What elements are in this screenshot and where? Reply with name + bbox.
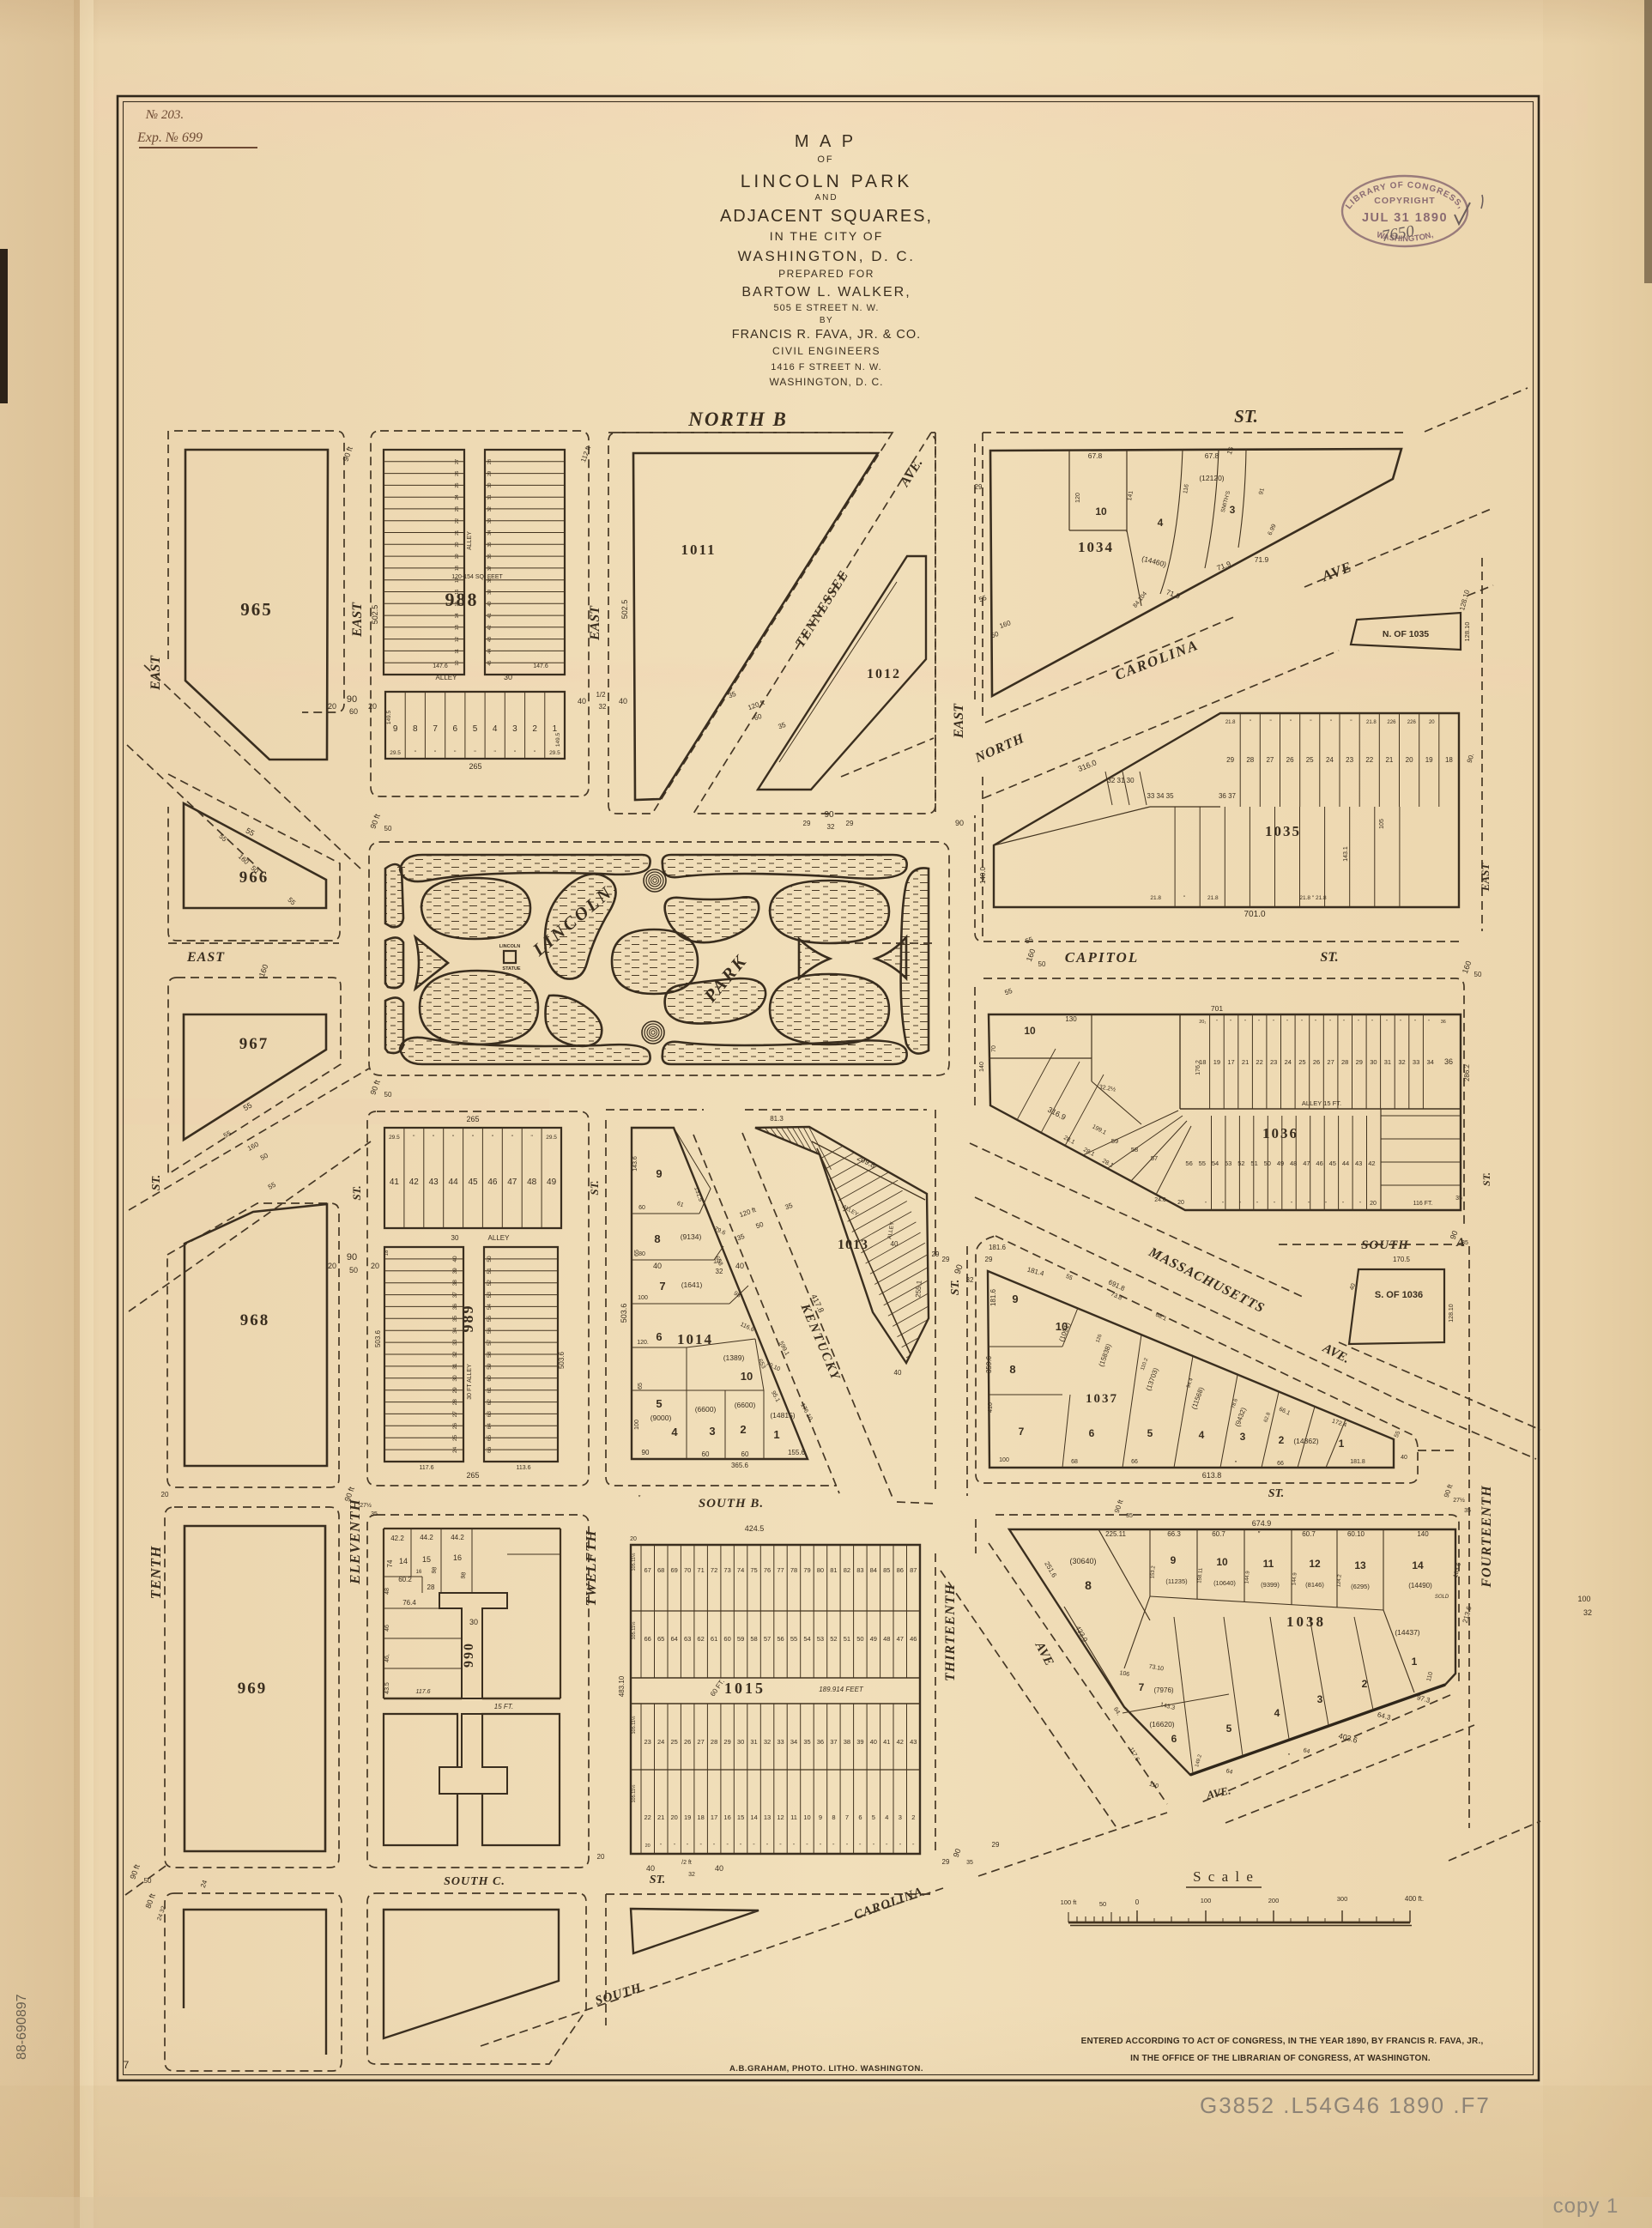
- svg-text:": ": [1270, 720, 1272, 725]
- svg-text:OF: OF: [817, 154, 833, 165]
- svg-text:": ": [1358, 1020, 1359, 1025]
- svg-text:": ": [1414, 1020, 1416, 1025]
- svg-text:": ": [1310, 720, 1311, 725]
- svg-text:№ 203.: № 203.: [145, 108, 184, 122]
- svg-text:": ": [899, 1844, 901, 1849]
- svg-text:1/2: 1/2: [713, 1259, 722, 1265]
- svg-text:1014: 1014: [677, 1331, 713, 1347]
- svg-text:63: 63: [487, 1411, 493, 1418]
- svg-text:21: 21: [1385, 756, 1393, 764]
- svg-text:12: 12: [1309, 1558, 1321, 1570]
- svg-text:1034: 1034: [1078, 539, 1114, 555]
- svg-text:6: 6: [1171, 1733, 1177, 1745]
- svg-text:43: 43: [1355, 1159, 1362, 1167]
- svg-text:37: 37: [487, 566, 493, 571]
- svg-text:53: 53: [487, 1292, 493, 1299]
- svg-text:11: 11: [790, 1813, 797, 1821]
- svg-text:47: 47: [897, 1635, 904, 1643]
- svg-text:(9134): (9134): [681, 1232, 702, 1241]
- svg-text:25: 25: [452, 1435, 458, 1442]
- svg-text:20: 20: [645, 1844, 651, 1849]
- svg-text:": ": [1291, 1202, 1292, 1207]
- svg-text:IN THE OFFICE OF THE LIBRARIAN: IN THE OFFICE OF THE LIBRARIAN OF CONGRE…: [1130, 2054, 1431, 2063]
- svg-text:25: 25: [671, 1738, 678, 1746]
- svg-text:31: 31: [750, 1738, 757, 1746]
- svg-text:": ": [700, 1844, 702, 1849]
- svg-text:ALLEY 15 FT.: ALLEY 15 FT.: [1302, 1099, 1341, 1107]
- svg-text:117.6: 117.6: [420, 1465, 434, 1471]
- svg-text:40: 40: [715, 1864, 723, 1873]
- svg-text:47: 47: [1303, 1159, 1310, 1167]
- svg-text:": ": [1371, 1020, 1373, 1025]
- svg-text:8: 8: [832, 1813, 835, 1821]
- svg-text:ENTERED ACCORDING TO ACT OF CO: ENTERED ACCORDING TO ACT OF CONGRESS, IN…: [1081, 2037, 1484, 2046]
- svg-text:29: 29: [723, 1738, 730, 1746]
- svg-text:42: 42: [1368, 1159, 1375, 1167]
- svg-text:40: 40: [735, 1262, 744, 1270]
- svg-text:ST.: ST.: [949, 1280, 962, 1296]
- svg-text:60: 60: [702, 1450, 710, 1458]
- svg-text:34: 34: [452, 1327, 458, 1334]
- svg-text:": ": [753, 1844, 755, 1849]
- svg-text:44: 44: [487, 649, 493, 654]
- svg-text:23: 23: [455, 506, 460, 512]
- svg-text:41: 41: [883, 1738, 890, 1746]
- svg-text:(12120): (12120): [1199, 474, 1224, 482]
- svg-text:43: 43: [429, 1178, 439, 1187]
- svg-text:120.: 120.: [637, 1340, 649, 1346]
- svg-text:3: 3: [1240, 1431, 1246, 1443]
- svg-text:6: 6: [858, 1813, 862, 1821]
- svg-text:105.11½: 105.11½: [631, 1621, 637, 1639]
- svg-text:56: 56: [777, 1635, 784, 1643]
- svg-text:7: 7: [845, 1813, 849, 1821]
- svg-text:": ": [859, 1844, 861, 1849]
- svg-text:(6600): (6600): [695, 1405, 717, 1414]
- svg-text:/2 ft: /2 ft: [681, 1860, 692, 1866]
- svg-text:23: 23: [1346, 756, 1353, 764]
- svg-text:": ": [1256, 1202, 1258, 1207]
- svg-text:50: 50: [1038, 960, 1046, 968]
- svg-text:120-154 SQ. FEET: 120-154 SQ. FEET: [451, 574, 503, 580]
- svg-text:29: 29: [487, 471, 493, 476]
- svg-text:": ": [1244, 1020, 1246, 1025]
- svg-text:": ": [1258, 1020, 1260, 1025]
- svg-text:54: 54: [487, 1304, 493, 1311]
- svg-text:39: 39: [452, 1268, 458, 1274]
- svg-text:226: 226: [1387, 720, 1396, 725]
- svg-text:": ": [674, 1844, 675, 1849]
- svg-text:62: 62: [487, 1399, 493, 1406]
- svg-text:16: 16: [723, 1813, 730, 1821]
- svg-text:505 E STREET N. W.: 505 E STREET N. W.: [774, 303, 880, 313]
- svg-text:26: 26: [684, 1738, 691, 1746]
- svg-text:33 34 35: 33 34 35: [1147, 792, 1174, 800]
- svg-text:56: 56: [487, 1327, 493, 1334]
- svg-text:13: 13: [1354, 1559, 1366, 1571]
- svg-text:17: 17: [711, 1813, 717, 1821]
- svg-text:265: 265: [466, 1115, 479, 1123]
- svg-text:S c a l e: S c a l e: [1193, 1868, 1255, 1885]
- svg-text:15 FT.: 15 FT.: [494, 1703, 513, 1710]
- svg-text:IN THE CITY OF: IN THE CITY OF: [770, 229, 884, 243]
- svg-text:77: 77: [777, 1566, 784, 1574]
- svg-text:": ": [886, 1844, 887, 1849]
- svg-text:": ": [1216, 1020, 1218, 1025]
- svg-text:59: 59: [737, 1635, 744, 1643]
- svg-text:30: 30: [451, 1234, 459, 1242]
- svg-text:36: 36: [1441, 1020, 1446, 1025]
- svg-text:37: 37: [830, 1738, 837, 1746]
- svg-text:7: 7: [1139, 1681, 1145, 1693]
- svg-text:21.8: 21.8: [1207, 895, 1219, 901]
- svg-text:(14437): (14437): [1395, 1628, 1419, 1637]
- svg-text:6: 6: [1089, 1427, 1095, 1439]
- svg-text:COPYRIGHT: COPYRIGHT: [1374, 196, 1435, 206]
- svg-text:SOLD: SOLD: [1435, 1595, 1449, 1600]
- svg-text:67: 67: [644, 1566, 651, 1574]
- svg-text:105.11½: 105.11½: [631, 1553, 637, 1571]
- svg-text:1: 1: [1412, 1656, 1418, 1668]
- svg-text:1: 1: [553, 724, 558, 734]
- svg-text:27: 27: [452, 1411, 458, 1418]
- svg-text:STATUE: STATUE: [502, 966, 521, 972]
- svg-text:4: 4: [1199, 1429, 1205, 1441]
- svg-text:502.5: 502.5: [620, 600, 629, 620]
- svg-text:S. OF 1036: S. OF 1036: [1375, 1290, 1423, 1300]
- svg-text:26: 26: [1313, 1058, 1320, 1066]
- svg-text:990: 990: [462, 1642, 476, 1668]
- svg-text:87: 87: [910, 1566, 917, 1574]
- svg-text:46: 46: [384, 1625, 390, 1632]
- svg-text:43: 43: [487, 637, 493, 642]
- svg-text:44.2: 44.2: [420, 1534, 433, 1541]
- svg-text:2: 2: [1279, 1434, 1285, 1446]
- svg-text:33: 33: [777, 1738, 784, 1746]
- svg-text:98: 98: [431, 1566, 438, 1574]
- svg-text:503.6: 503.6: [620, 1304, 628, 1323]
- svg-text:226: 226: [1407, 720, 1417, 725]
- svg-text:483.10: 483.10: [618, 1675, 626, 1697]
- svg-text:30: 30: [737, 1738, 744, 1746]
- svg-text:(1389): (1389): [723, 1353, 745, 1362]
- svg-text:9: 9: [656, 1167, 662, 1180]
- svg-text:26: 26: [455, 471, 460, 476]
- svg-text:43.5: 43.5: [384, 1682, 390, 1694]
- svg-text:35: 35: [1461, 1240, 1468, 1246]
- svg-text:100: 100: [1201, 1897, 1212, 1904]
- svg-text:(8146): (8146): [1305, 1581, 1324, 1589]
- svg-text:ST.: ST.: [1320, 950, 1338, 965]
- svg-text:copy 1: copy 1: [1553, 2195, 1619, 2218]
- svg-text:73: 73: [723, 1566, 730, 1574]
- svg-text:(10640): (10640): [1213, 1579, 1236, 1587]
- svg-text:": ": [912, 1844, 914, 1849]
- svg-text:10: 10: [1095, 506, 1107, 518]
- svg-text:31: 31: [452, 1363, 458, 1370]
- svg-text:13: 13: [764, 1813, 771, 1821]
- svg-text:66: 66: [1131, 1459, 1138, 1465]
- svg-text:225.11: 225.11: [1105, 1530, 1126, 1538]
- svg-text:AND: AND: [814, 193, 838, 203]
- svg-text:66: 66: [1277, 1461, 1284, 1467]
- svg-text:49: 49: [547, 1178, 557, 1187]
- svg-text:29: 29: [992, 1841, 1000, 1849]
- svg-text:66: 66: [487, 1446, 493, 1453]
- svg-text:60: 60: [741, 1450, 749, 1458]
- svg-text:18: 18: [1445, 756, 1453, 764]
- svg-text:(11235): (11235): [1165, 1577, 1188, 1585]
- svg-text:143.1: 143.1: [1343, 846, 1349, 862]
- svg-text:46: 46: [1316, 1159, 1322, 1167]
- svg-text:40: 40: [619, 697, 627, 705]
- svg-text:5: 5: [473, 724, 478, 734]
- svg-text:36 37: 36 37: [1219, 792, 1237, 800]
- svg-text:32: 32: [599, 703, 607, 711]
- svg-text:265: 265: [469, 762, 481, 771]
- svg-text:5: 5: [1147, 1427, 1153, 1439]
- svg-text:27: 27: [697, 1738, 704, 1746]
- svg-text:2: 2: [911, 1813, 915, 1821]
- svg-text:": ": [1386, 1020, 1388, 1025]
- svg-text:10: 10: [1024, 1025, 1036, 1037]
- svg-text:CIVIL ENGINEERS: CIVIL ENGINEERS: [772, 345, 880, 357]
- svg-text:46,: 46,: [384, 1654, 390, 1662]
- svg-text:80: 80: [638, 1251, 645, 1257]
- svg-text:": ": [1290, 720, 1292, 725]
- svg-text:": ": [820, 1844, 821, 1849]
- svg-text:21: 21: [657, 1813, 664, 1821]
- svg-text:30: 30: [469, 1618, 478, 1626]
- svg-text:28: 28: [452, 1399, 458, 1406]
- svg-text:265: 265: [466, 1471, 479, 1480]
- svg-text:42: 42: [897, 1738, 904, 1746]
- svg-text:365.6: 365.6: [731, 1462, 749, 1469]
- svg-text:57: 57: [764, 1635, 771, 1643]
- svg-text:9: 9: [819, 1813, 822, 1821]
- svg-text:28: 28: [1341, 1058, 1348, 1066]
- svg-text:45: 45: [1329, 1159, 1336, 1167]
- svg-text:30: 30: [452, 1375, 458, 1382]
- svg-text:ADJACENT SQUARES,: ADJACENT SQUARES,: [720, 207, 933, 226]
- svg-text:72: 72: [711, 1566, 717, 1574]
- svg-text:29: 29: [985, 1256, 993, 1263]
- svg-text:48: 48: [883, 1635, 890, 1643]
- svg-text:40: 40: [452, 1256, 458, 1262]
- svg-text:20: 20: [1429, 720, 1435, 725]
- svg-text:39: 39: [856, 1738, 863, 1746]
- svg-text:9: 9: [393, 724, 398, 734]
- svg-text:EAST: EAST: [952, 703, 966, 739]
- svg-text:3: 3: [899, 1813, 902, 1821]
- svg-text:100: 100: [999, 1457, 1009, 1463]
- svg-text:40: 40: [646, 1864, 655, 1873]
- svg-text:147.6: 147.6: [533, 663, 548, 669]
- svg-text:(9000): (9000): [651, 1414, 672, 1422]
- svg-text:34: 34: [790, 1738, 797, 1746]
- svg-text:82: 82: [844, 1566, 850, 1574]
- svg-text:BARTOW L. WALKER,: BARTOW L. WALKER,: [741, 285, 911, 300]
- svg-text:49: 49: [870, 1635, 877, 1643]
- svg-text:35: 35: [452, 1316, 458, 1323]
- svg-text:674.9: 674.9: [1252, 1519, 1272, 1528]
- svg-text:60: 60: [723, 1635, 730, 1643]
- svg-text:50: 50: [384, 825, 392, 832]
- svg-text:19: 19: [684, 1813, 691, 1821]
- svg-text:140.0: 140.0: [979, 866, 987, 884]
- svg-text:45: 45: [487, 661, 493, 666]
- svg-text:149.5: 149.5: [386, 710, 392, 724]
- svg-text:": ": [1325, 1202, 1327, 1207]
- svg-text:61: 61: [711, 1635, 717, 1643]
- svg-text:410: 410: [988, 1402, 994, 1413]
- svg-text:": ": [780, 1844, 782, 1849]
- svg-text:21.8 ″ 21.8: 21.8 ″ 21.8: [1299, 895, 1327, 901]
- svg-text:40: 40: [1401, 1455, 1407, 1461]
- svg-text:32: 32: [1583, 1608, 1592, 1617]
- svg-text:": ": [1274, 1202, 1275, 1207]
- svg-text:29: 29: [932, 1250, 940, 1258]
- svg-text:EAST: EAST: [186, 950, 225, 965]
- svg-text:181.6: 181.6: [989, 1244, 1007, 1251]
- svg-text:25: 25: [1306, 756, 1314, 764]
- svg-text:33: 33: [1413, 1058, 1419, 1066]
- svg-text:16: 16: [453, 1553, 462, 1562]
- svg-text:5: 5: [872, 1813, 875, 1821]
- svg-text:": ": [1230, 1020, 1231, 1025]
- svg-text:90: 90: [955, 819, 964, 827]
- svg-text:7: 7: [1019, 1426, 1025, 1438]
- svg-text:66.3: 66.3: [1167, 1530, 1181, 1538]
- svg-text:29: 29: [942, 1858, 950, 1866]
- svg-text:55: 55: [487, 1316, 493, 1323]
- svg-text:FOURTEENTH: FOURTEENTH: [1480, 1485, 1494, 1588]
- svg-text:286.2: 286.2: [1463, 1063, 1471, 1081]
- svg-text:(30640): (30640): [1069, 1557, 1096, 1565]
- svg-text:424.5: 424.5: [745, 1524, 765, 1533]
- svg-text:20: 20: [1370, 1201, 1377, 1207]
- svg-text:11: 11: [1263, 1558, 1274, 1570]
- svg-text:40: 40: [653, 1262, 662, 1270]
- svg-text:60: 60: [638, 1205, 645, 1211]
- svg-text:19: 19: [1213, 1058, 1220, 1066]
- svg-text:27: 27: [455, 459, 460, 464]
- svg-text:70: 70: [991, 1045, 997, 1052]
- svg-text:": ": [660, 1844, 662, 1849]
- svg-text:46: 46: [910, 1635, 917, 1643]
- svg-text:39: 39: [487, 590, 493, 595]
- svg-text:60.7: 60.7: [1302, 1530, 1316, 1538]
- svg-text:105.11½: 105.11½: [631, 1716, 637, 1734]
- svg-text:ST.: ST.: [1480, 1172, 1492, 1186]
- svg-text:90: 90: [824, 810, 834, 820]
- svg-text:NORTH B: NORTH B: [687, 409, 788, 430]
- svg-text:59: 59: [1111, 1137, 1118, 1145]
- svg-text:": ": [846, 1844, 848, 1849]
- svg-text:58: 58: [487, 1351, 493, 1358]
- svg-text:65: 65: [487, 1435, 493, 1442]
- svg-text:52: 52: [487, 1280, 493, 1287]
- svg-text:1011: 1011: [681, 542, 716, 558]
- svg-text:": ": [727, 1844, 729, 1849]
- svg-text:": ": [873, 1844, 874, 1849]
- svg-text:32: 32: [688, 1872, 695, 1878]
- svg-text:27½: 27½: [1453, 1497, 1465, 1504]
- svg-text:WASHINGTON, D. C.: WASHINGTON, D. C.: [769, 376, 883, 388]
- svg-text:989: 989: [459, 1305, 476, 1333]
- svg-text:2: 2: [532, 724, 537, 734]
- svg-text:38: 38: [452, 1280, 458, 1287]
- svg-text:48: 48: [1290, 1159, 1297, 1167]
- svg-text:68: 68: [1071, 1459, 1078, 1465]
- svg-text:25: 25: [455, 483, 460, 488]
- svg-text:13: 13: [455, 625, 460, 630]
- svg-text:19: 19: [455, 554, 460, 559]
- svg-text:84: 84: [870, 1566, 877, 1574]
- svg-text:74: 74: [386, 1559, 394, 1567]
- svg-text:60.2: 60.2: [398, 1576, 412, 1583]
- svg-text:60.7: 60.7: [1212, 1530, 1225, 1538]
- svg-text:": ": [1222, 1202, 1224, 1207]
- svg-text:ST.: ST.: [588, 1180, 601, 1195]
- svg-text:965: 965: [240, 599, 273, 620]
- svg-text:968: 968: [240, 1311, 270, 1329]
- svg-text:10: 10: [455, 661, 460, 666]
- svg-text:55: 55: [1199, 1159, 1206, 1167]
- svg-text:98: 98: [460, 1571, 467, 1579]
- svg-text:52: 52: [830, 1635, 837, 1643]
- svg-text:48: 48: [384, 1588, 390, 1595]
- svg-text:30: 30: [1370, 1058, 1377, 1066]
- svg-text:": ": [1273, 1020, 1274, 1025]
- svg-text:ST.: ST.: [1234, 406, 1258, 427]
- svg-text:35: 35: [1126, 1513, 1133, 1519]
- svg-text:EAST: EAST: [148, 655, 163, 691]
- svg-text:1013: 1013: [838, 1238, 868, 1252]
- svg-text:143.6: 143.6: [632, 1156, 638, 1172]
- svg-text:66: 66: [644, 1635, 651, 1643]
- svg-text:32: 32: [764, 1738, 771, 1746]
- svg-text:22: 22: [1365, 756, 1373, 764]
- svg-text:28: 28: [487, 459, 493, 464]
- svg-text:63: 63: [684, 1635, 691, 1643]
- svg-text:EAST: EAST: [588, 605, 602, 641]
- svg-text:3: 3: [1230, 504, 1236, 516]
- svg-text:117.6: 117.6: [416, 1689, 431, 1695]
- svg-text:24: 24: [1285, 1058, 1292, 1066]
- svg-text:20: 20: [161, 1491, 169, 1498]
- svg-text:35: 35: [487, 542, 493, 548]
- svg-text:18: 18: [697, 1813, 704, 1821]
- svg-text:60.10: 60.10: [1347, 1530, 1365, 1538]
- svg-text:70: 70: [684, 1566, 691, 1574]
- svg-text:20: 20: [630, 1536, 637, 1542]
- svg-text:″: ″: [1258, 1530, 1261, 1538]
- svg-text:ALLEY: ALLEY: [467, 531, 473, 550]
- svg-text:86: 86: [897, 1566, 904, 1574]
- svg-text:46: 46: [487, 1178, 498, 1187]
- svg-text:20: 20: [371, 1262, 379, 1270]
- svg-text:": ": [1330, 720, 1332, 725]
- svg-text:26: 26: [1286, 756, 1294, 764]
- svg-text:43: 43: [910, 1738, 917, 1746]
- svg-text:100: 100: [638, 1295, 648, 1301]
- svg-text:0: 0: [1135, 1898, 1140, 1906]
- svg-text:WASHINGTON, D. C.: WASHINGTON, D. C.: [738, 248, 916, 264]
- svg-text:3: 3: [709, 1425, 715, 1438]
- svg-text:19: 19: [1425, 756, 1433, 764]
- svg-text:": ": [740, 1844, 741, 1849]
